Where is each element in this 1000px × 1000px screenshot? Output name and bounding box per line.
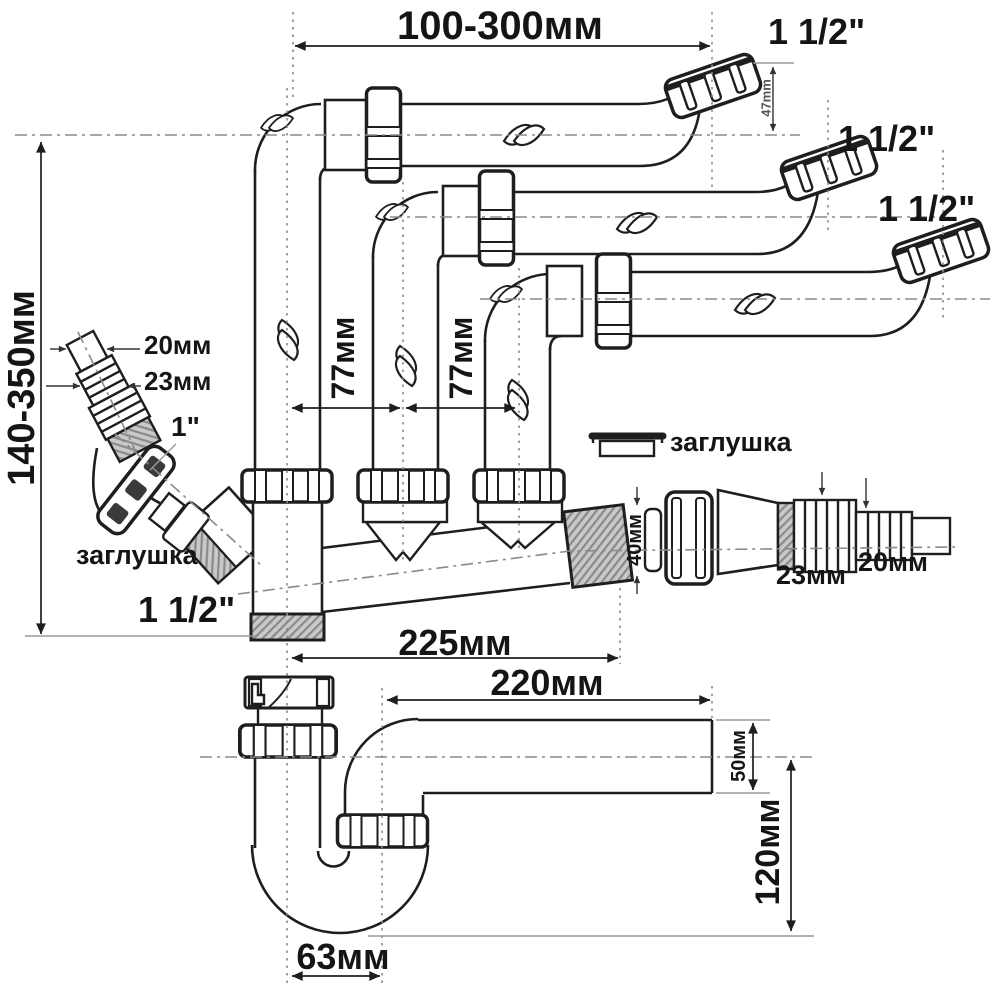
- trap-inlet-nut-icon: [240, 725, 336, 757]
- dim-top-span-label: 100-300мм: [397, 6, 603, 46]
- outlet2-size-label: 1 1/2": [838, 121, 935, 157]
- dim-manifold-length-label: 225мм: [398, 625, 511, 661]
- dim-outlet-pipe-height-label: 50мм: [729, 730, 749, 782]
- dim-washer-label: 40мм: [625, 514, 645, 566]
- branch2-nut-icon: [480, 171, 514, 265]
- dim-pipe-spacing1-label: 77мм: [327, 317, 359, 400]
- outlet3-size-label: 1 1/2": [878, 191, 975, 227]
- dim-pipe-spacing2-label: 77мм: [445, 317, 477, 400]
- dim-trap-drop-label: 120мм: [751, 798, 785, 905]
- branch3-nut-icon: [597, 254, 631, 348]
- washer-icon: [645, 509, 661, 571]
- plug-left-label: заглушка: [76, 542, 198, 569]
- dim-left-hose-tip-label: 20мм: [144, 332, 211, 358]
- plug-icon: [592, 433, 663, 456]
- dim-left-height-label: 140-350мм: [3, 290, 41, 486]
- dim-trap-width-label: 63мм: [296, 939, 389, 975]
- bottom-outlet-size-label: 1 1/2": [138, 592, 235, 628]
- cone-reducer-icon: [718, 490, 778, 574]
- plug-right-label: заглушка: [670, 429, 792, 456]
- dim-outlet-pipe-length-label: 220мм: [490, 665, 603, 701]
- side-inlet-size-label: 1": [171, 413, 200, 441]
- dim-right-hose-label: 23мм: [776, 562, 846, 589]
- dim-outlet-offset-label: 47mm: [760, 79, 773, 117]
- dim-right-hose-tip-label: 20мм: [858, 549, 928, 576]
- outlet1-size-label: 1 1/2": [768, 14, 865, 50]
- dim-left-hose-label: 23мм: [144, 368, 211, 394]
- right-nut-icon: [666, 492, 712, 584]
- right-threaded-outlet: [564, 505, 633, 588]
- diagram-page: 100-300мм 1 1/2" 1 1/2" 1 1/2" 47mm 140-…: [0, 0, 1000, 1000]
